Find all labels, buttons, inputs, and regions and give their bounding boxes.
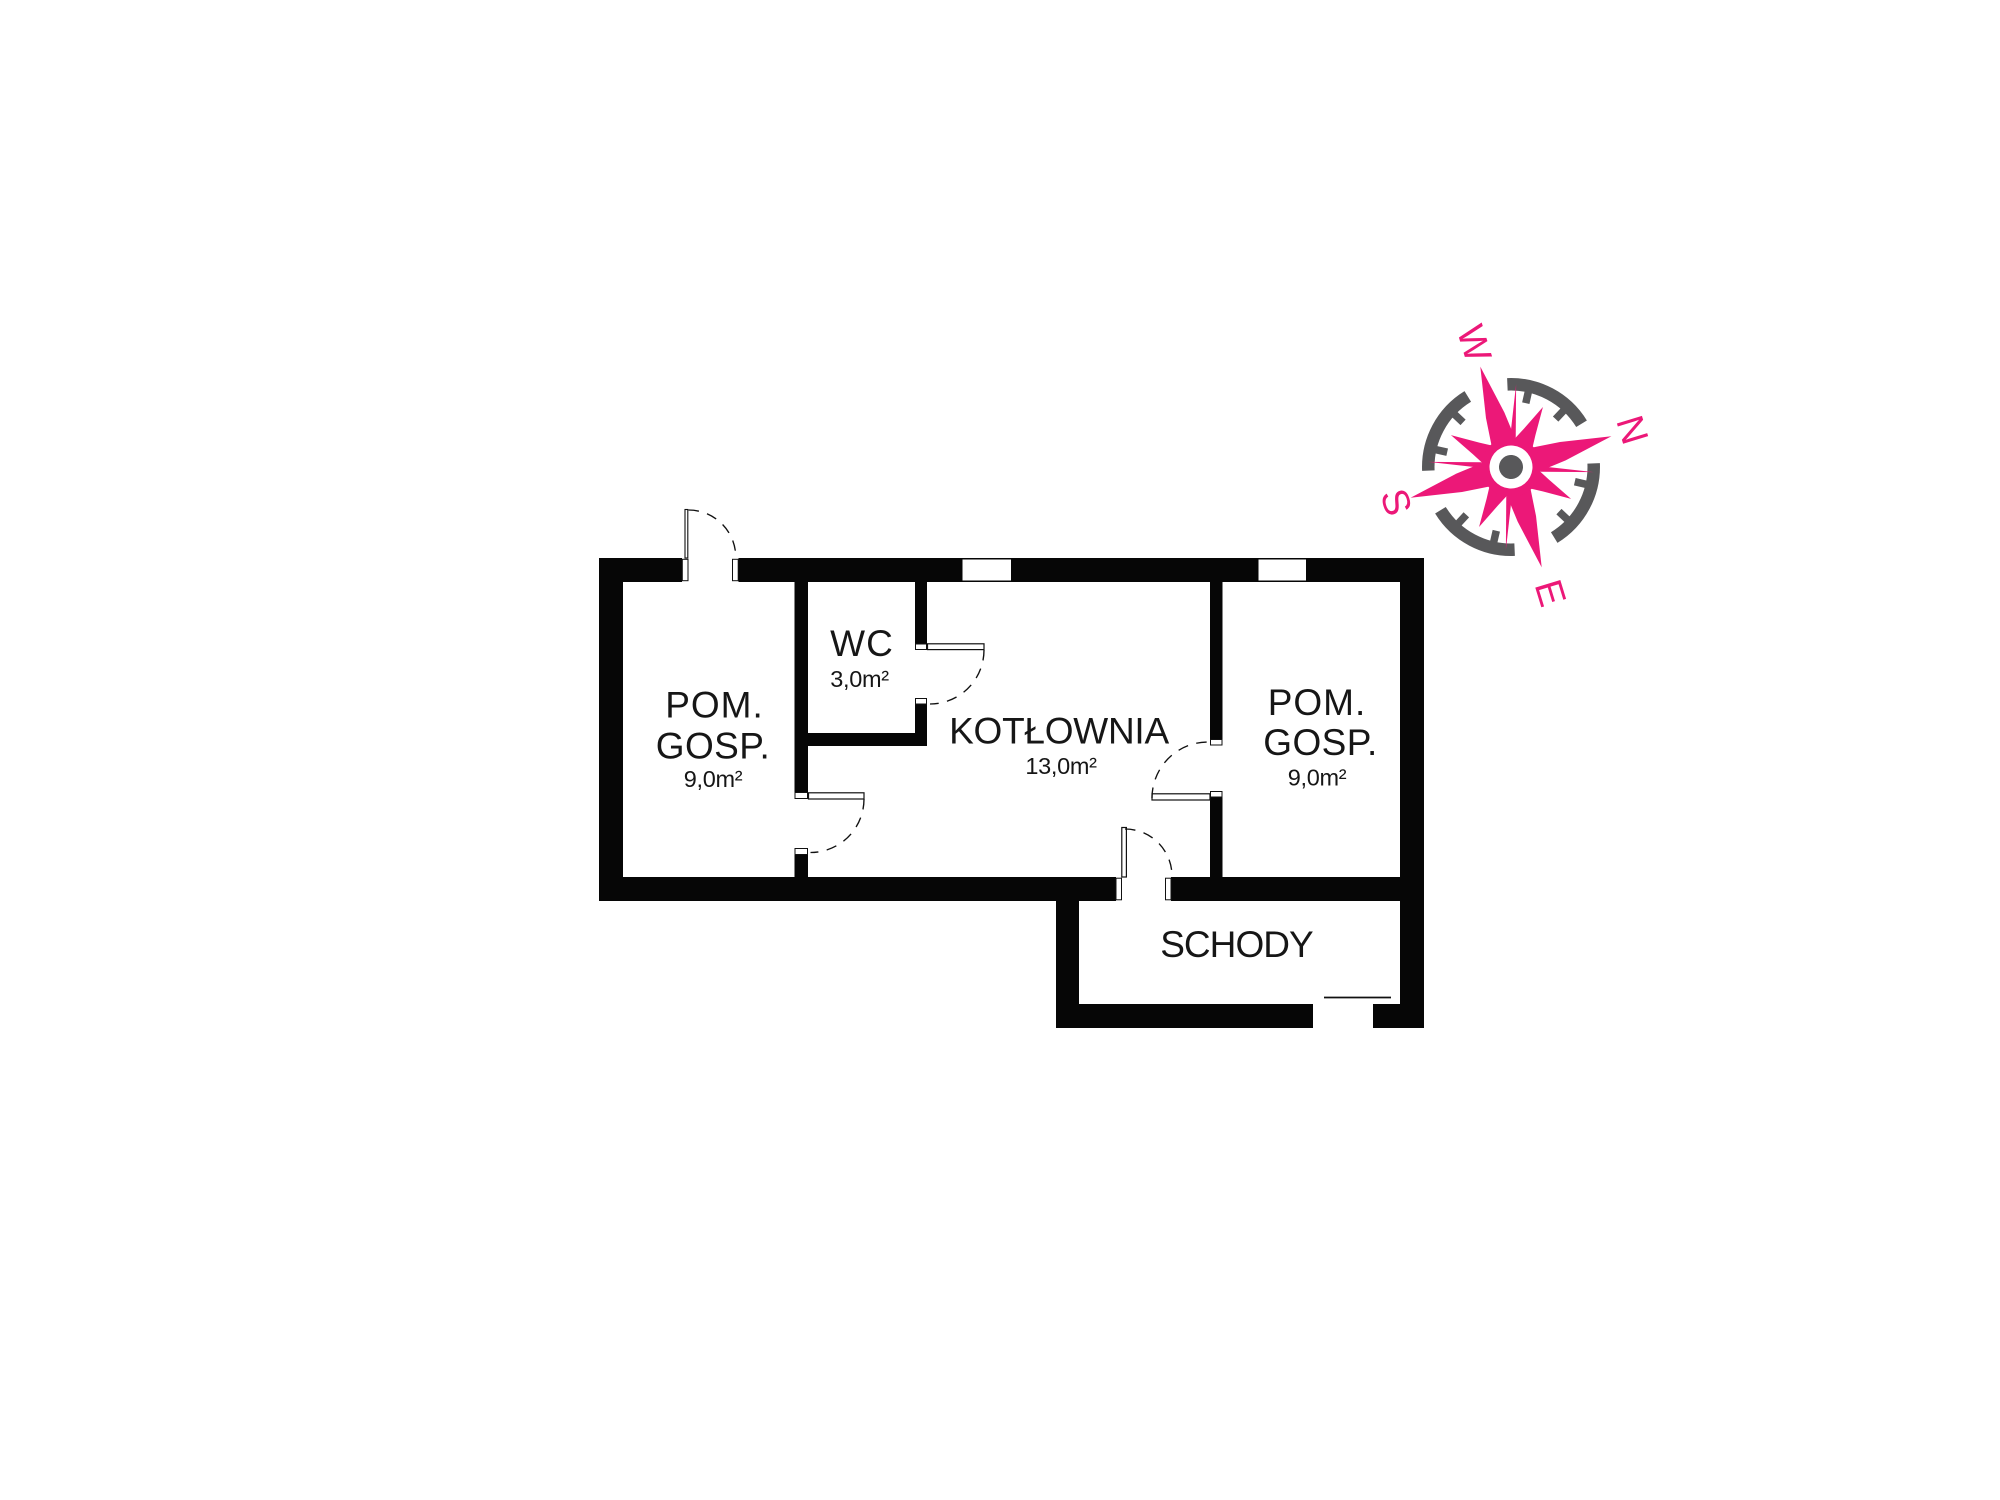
- svg-text:POM.: POM.: [1268, 682, 1367, 723]
- svg-text:9,0m²: 9,0m²: [1288, 765, 1347, 791]
- svg-text:3,0m²: 3,0m²: [830, 666, 889, 692]
- svg-text:SCHODY: SCHODY: [1160, 924, 1313, 965]
- svg-text:WC: WC: [830, 623, 894, 664]
- svg-text:KOTŁOWNIA: KOTŁOWNIA: [949, 711, 1169, 752]
- svg-text:POM.: POM.: [665, 685, 764, 726]
- svg-text:9,0m²: 9,0m²: [684, 766, 743, 792]
- svg-text:GOSP.: GOSP.: [1263, 722, 1377, 763]
- svg-text:13,0m²: 13,0m²: [1025, 753, 1097, 779]
- svg-text:GOSP.: GOSP.: [656, 726, 770, 767]
